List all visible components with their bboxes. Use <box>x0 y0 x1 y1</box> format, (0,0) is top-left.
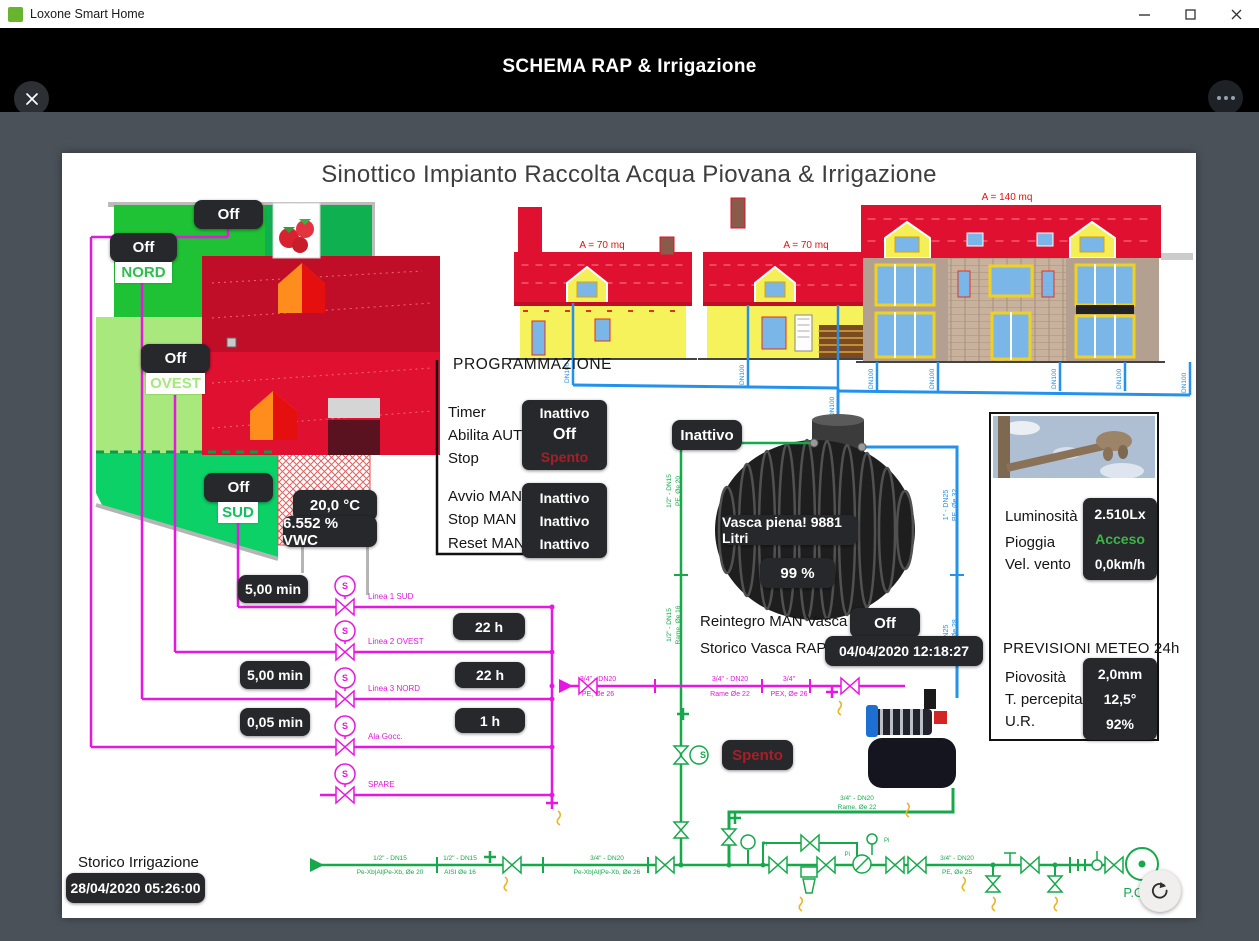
app-header: SCHEMA RAP & Irrigazione <box>0 28 1259 112</box>
svg-text:Pe-Xb|Al|Pe-Xb, Øe 20: Pe-Xb|Al|Pe-Xb, Øe 20 <box>357 869 424 876</box>
close-page-button[interactable] <box>14 81 49 116</box>
svg-text:1/2" - DN15: 1/2" - DN15 <box>443 855 477 862</box>
svg-text:S: S <box>342 769 348 779</box>
svg-text:DN100: DN100 <box>829 396 836 417</box>
svg-text:Rame, Øe 22: Rame, Øe 22 <box>838 804 877 811</box>
pump-drawing <box>866 689 956 788</box>
tank-percent-badge[interactable]: 99 % <box>760 558 835 588</box>
line4-countdown-badge[interactable]: 1 h <box>455 708 525 733</box>
reintegro-state-badge[interactable]: Off <box>850 608 920 638</box>
stopman-value: Inattivo <box>540 514 590 528</box>
stop-value: Spento <box>541 450 588 464</box>
program-manual-box[interactable]: Inattivo Inattivo Inattivo <box>522 483 607 558</box>
svg-text:DN100: DN100 <box>1116 368 1123 389</box>
rain24-label: Piovosità <box>1005 669 1066 686</box>
timer-value: Inattivo <box>540 406 590 420</box>
svg-text:Rame Øe 22: Rame Øe 22 <box>710 691 750 698</box>
svg-text:1/2" - DN15: 1/2" - DN15 <box>666 608 673 642</box>
svg-text:Pi: Pi <box>762 842 767 848</box>
svg-text:S: S <box>342 673 348 683</box>
soil-moisture-badge[interactable]: 6.552 % VWC <box>283 516 377 547</box>
stopman-label: Stop MAN <box>448 511 516 528</box>
line1-duration-badge[interactable]: 5,00 min <box>238 575 308 603</box>
zone-ovest-state-badge[interactable]: Off <box>141 344 210 373</box>
more-options-button[interactable] <box>1208 80 1243 115</box>
refresh-button[interactable] <box>1139 870 1181 912</box>
refresh-icon <box>1149 880 1171 902</box>
window-title: Loxone Smart Home <box>30 7 145 21</box>
storico-irrigazione-label: Storico Irrigazione <box>78 854 199 871</box>
line5-label: SPARE <box>368 780 395 789</box>
program-auto-box[interactable]: Inattivo Off Spento <box>522 400 607 470</box>
humidity-value: 92% <box>1106 717 1134 731</box>
svg-text:1" - DN25: 1" - DN25 <box>943 490 950 521</box>
zone-sud-label: SUD <box>218 502 258 523</box>
line1-label: Linea 1 SUD <box>368 592 414 601</box>
svg-text:3/4" - DN20: 3/4" - DN20 <box>940 855 974 862</box>
zone-nord-label: NORD <box>115 262 172 283</box>
temp-label: T. percepita <box>1005 691 1083 708</box>
storico-vasca-label: Storico Vasca RAP <box>700 640 826 657</box>
close-window-icon <box>1231 9 1242 20</box>
zone-top-state-badge[interactable]: Off <box>194 200 263 229</box>
svg-text:Pi: Pi <box>845 852 850 858</box>
area-label-2: A = 70 mq <box>783 240 828 251</box>
valve-letter: S <box>700 750 706 760</box>
tank-inlet-state-badge[interactable]: Inattivo <box>672 420 742 450</box>
forecast-values-box[interactable]: 2,0mm 12,5° 92% <box>1083 658 1157 740</box>
svg-text:AISI Øe 16: AISI Øe 16 <box>444 869 476 876</box>
rain-label: Pioggia <box>1005 534 1055 551</box>
stage: A = 70 mq A = 70 mq A = 140 mq DN100 DN1… <box>0 112 1259 941</box>
line4-label: Ala Gocc. <box>368 732 403 741</box>
svg-text:1/2" - DN15: 1/2" - DN15 <box>373 855 407 862</box>
svg-text:PE, Øe 32: PE, Øe 32 <box>952 489 959 521</box>
svg-text:1/2" - DN15: 1/2" - DN15 <box>666 474 673 508</box>
storico-vasca-badge[interactable]: 04/04/2020 12:18:27 <box>825 636 983 666</box>
wind-label: Vel. vento <box>1005 556 1071 573</box>
close-icon <box>25 92 39 106</box>
svg-text:Pi: Pi <box>884 838 889 844</box>
area-label-1: A = 70 mq <box>579 240 624 251</box>
diagram-title: Sinottico Impianto Raccolta Acqua Piovan… <box>62 161 1196 189</box>
humidity-label: U.R. <box>1005 713 1035 730</box>
maximize-button[interactable] <box>1167 0 1213 28</box>
ellipsis-icon <box>1217 96 1221 100</box>
svg-text:Pe-Xb|Al|Pe-Xb, Øe 26: Pe-Xb|Al|Pe-Xb, Øe 26 <box>574 869 641 876</box>
program-title: PROGRAMMAZIONE <box>453 356 612 374</box>
houses-drawing: A = 70 mq A = 70 mq A = 140 mq <box>510 192 1193 362</box>
svg-text:3/4" - DN20: 3/4" - DN20 <box>580 676 616 683</box>
svg-text:PE, Øe 26: PE, Øe 26 <box>582 691 614 698</box>
line2-label: Linea 2 OVEST <box>368 637 424 646</box>
svg-text:DN100: DN100 <box>739 364 746 385</box>
close-window-button[interactable] <box>1213 0 1259 28</box>
os-titlebar: Loxone Smart Home <box>0 0 1259 28</box>
line3-duration-badge[interactable]: 5,00 min <box>240 661 310 689</box>
zone-ovest-label: OVEST <box>146 373 205 394</box>
svg-text:3/4" - DN20: 3/4" - DN20 <box>590 855 624 862</box>
rain-value: Acceso <box>1095 532 1145 546</box>
area-label-3: A = 140 mq <box>982 192 1033 203</box>
minimize-icon <box>1139 9 1150 20</box>
wind-value: 0,0km/h <box>1095 558 1145 572</box>
svg-text:S: S <box>342 626 348 636</box>
auto-label: Abilita AUTO <box>448 427 534 444</box>
synoptic-canvas: A = 70 mq A = 70 mq A = 140 mq DN100 DN1… <box>62 153 1196 918</box>
luminosity-value: 2.510Lx <box>1094 507 1145 521</box>
avvio-label: Avvio MAN <box>448 488 522 505</box>
svg-text:DN100: DN100 <box>868 368 875 389</box>
line4-duration-badge[interactable]: 0,05 min <box>240 708 310 736</box>
forecast-title: PREVISIONI METEO 24h <box>1003 640 1180 657</box>
svg-text:PEX, Øe 26: PEX, Øe 26 <box>771 691 808 698</box>
strawberry-image <box>273 203 320 258</box>
minimize-button[interactable] <box>1121 0 1167 28</box>
luminosity-label: Luminosità <box>1005 508 1078 525</box>
tank-level-badge[interactable]: Vasca piena! 9881 Litri <box>722 515 858 545</box>
avvio-value: Inattivo <box>540 491 590 505</box>
svg-text:3/4" - DN20: 3/4" - DN20 <box>712 676 748 683</box>
reintegro-label: Reintegro MAN Vasca <box>700 613 847 630</box>
loxone-logo-icon <box>8 7 23 22</box>
svg-text:S: S <box>342 721 348 731</box>
line3-countdown-badge[interactable]: 22 h <box>455 662 525 688</box>
svg-text:S: S <box>342 581 348 591</box>
line1-countdown-badge[interactable]: 22 h <box>453 613 525 640</box>
page-title: SCHEMA RAP & Irrigazione <box>0 56 1259 78</box>
svg-text:3/4": 3/4" <box>783 676 796 683</box>
reset-label: Reset MAN <box>448 535 525 552</box>
weather-values-box[interactable]: 2.510Lx Acceso 0,0km/h <box>1083 498 1157 580</box>
zone-sud-state-badge[interactable]: Off <box>204 473 273 502</box>
temp-value: 12,5° <box>1104 692 1137 706</box>
svg-text:PE, Øe 20: PE, Øe 20 <box>675 476 682 506</box>
storico-irrigazione-badge[interactable]: 28/04/2020 05:26:00 <box>66 873 205 903</box>
svg-text:DN100: DN100 <box>929 368 936 389</box>
drain-symbols <box>504 701 1057 911</box>
line3-label: Linea 3 NORD <box>368 684 420 693</box>
auto-value: Off <box>553 427 576 443</box>
maximize-icon <box>1185 9 1196 20</box>
svg-text:PE, Øe 25: PE, Øe 25 <box>942 869 972 876</box>
rain24-value: 2,0mm <box>1098 667 1142 681</box>
stop-label: Stop <box>448 450 479 467</box>
pump-state-badge[interactable]: Spento <box>722 740 793 770</box>
svg-text:DN100: DN100 <box>1051 368 1058 389</box>
svg-text:3/4" - DN20: 3/4" - DN20 <box>840 795 874 802</box>
svg-text:Rame, Øe 16: Rame, Øe 16 <box>675 605 682 644</box>
reset-value: Inattivo <box>540 537 590 551</box>
zone-nord-state-badge[interactable]: Off <box>110 233 177 262</box>
timer-label: Timer <box>448 404 486 421</box>
app-window: Loxone Smart Home SCHEMA RAP & Irrigazio… <box>0 0 1259 941</box>
svg-text:DN100: DN100 <box>1181 372 1188 393</box>
